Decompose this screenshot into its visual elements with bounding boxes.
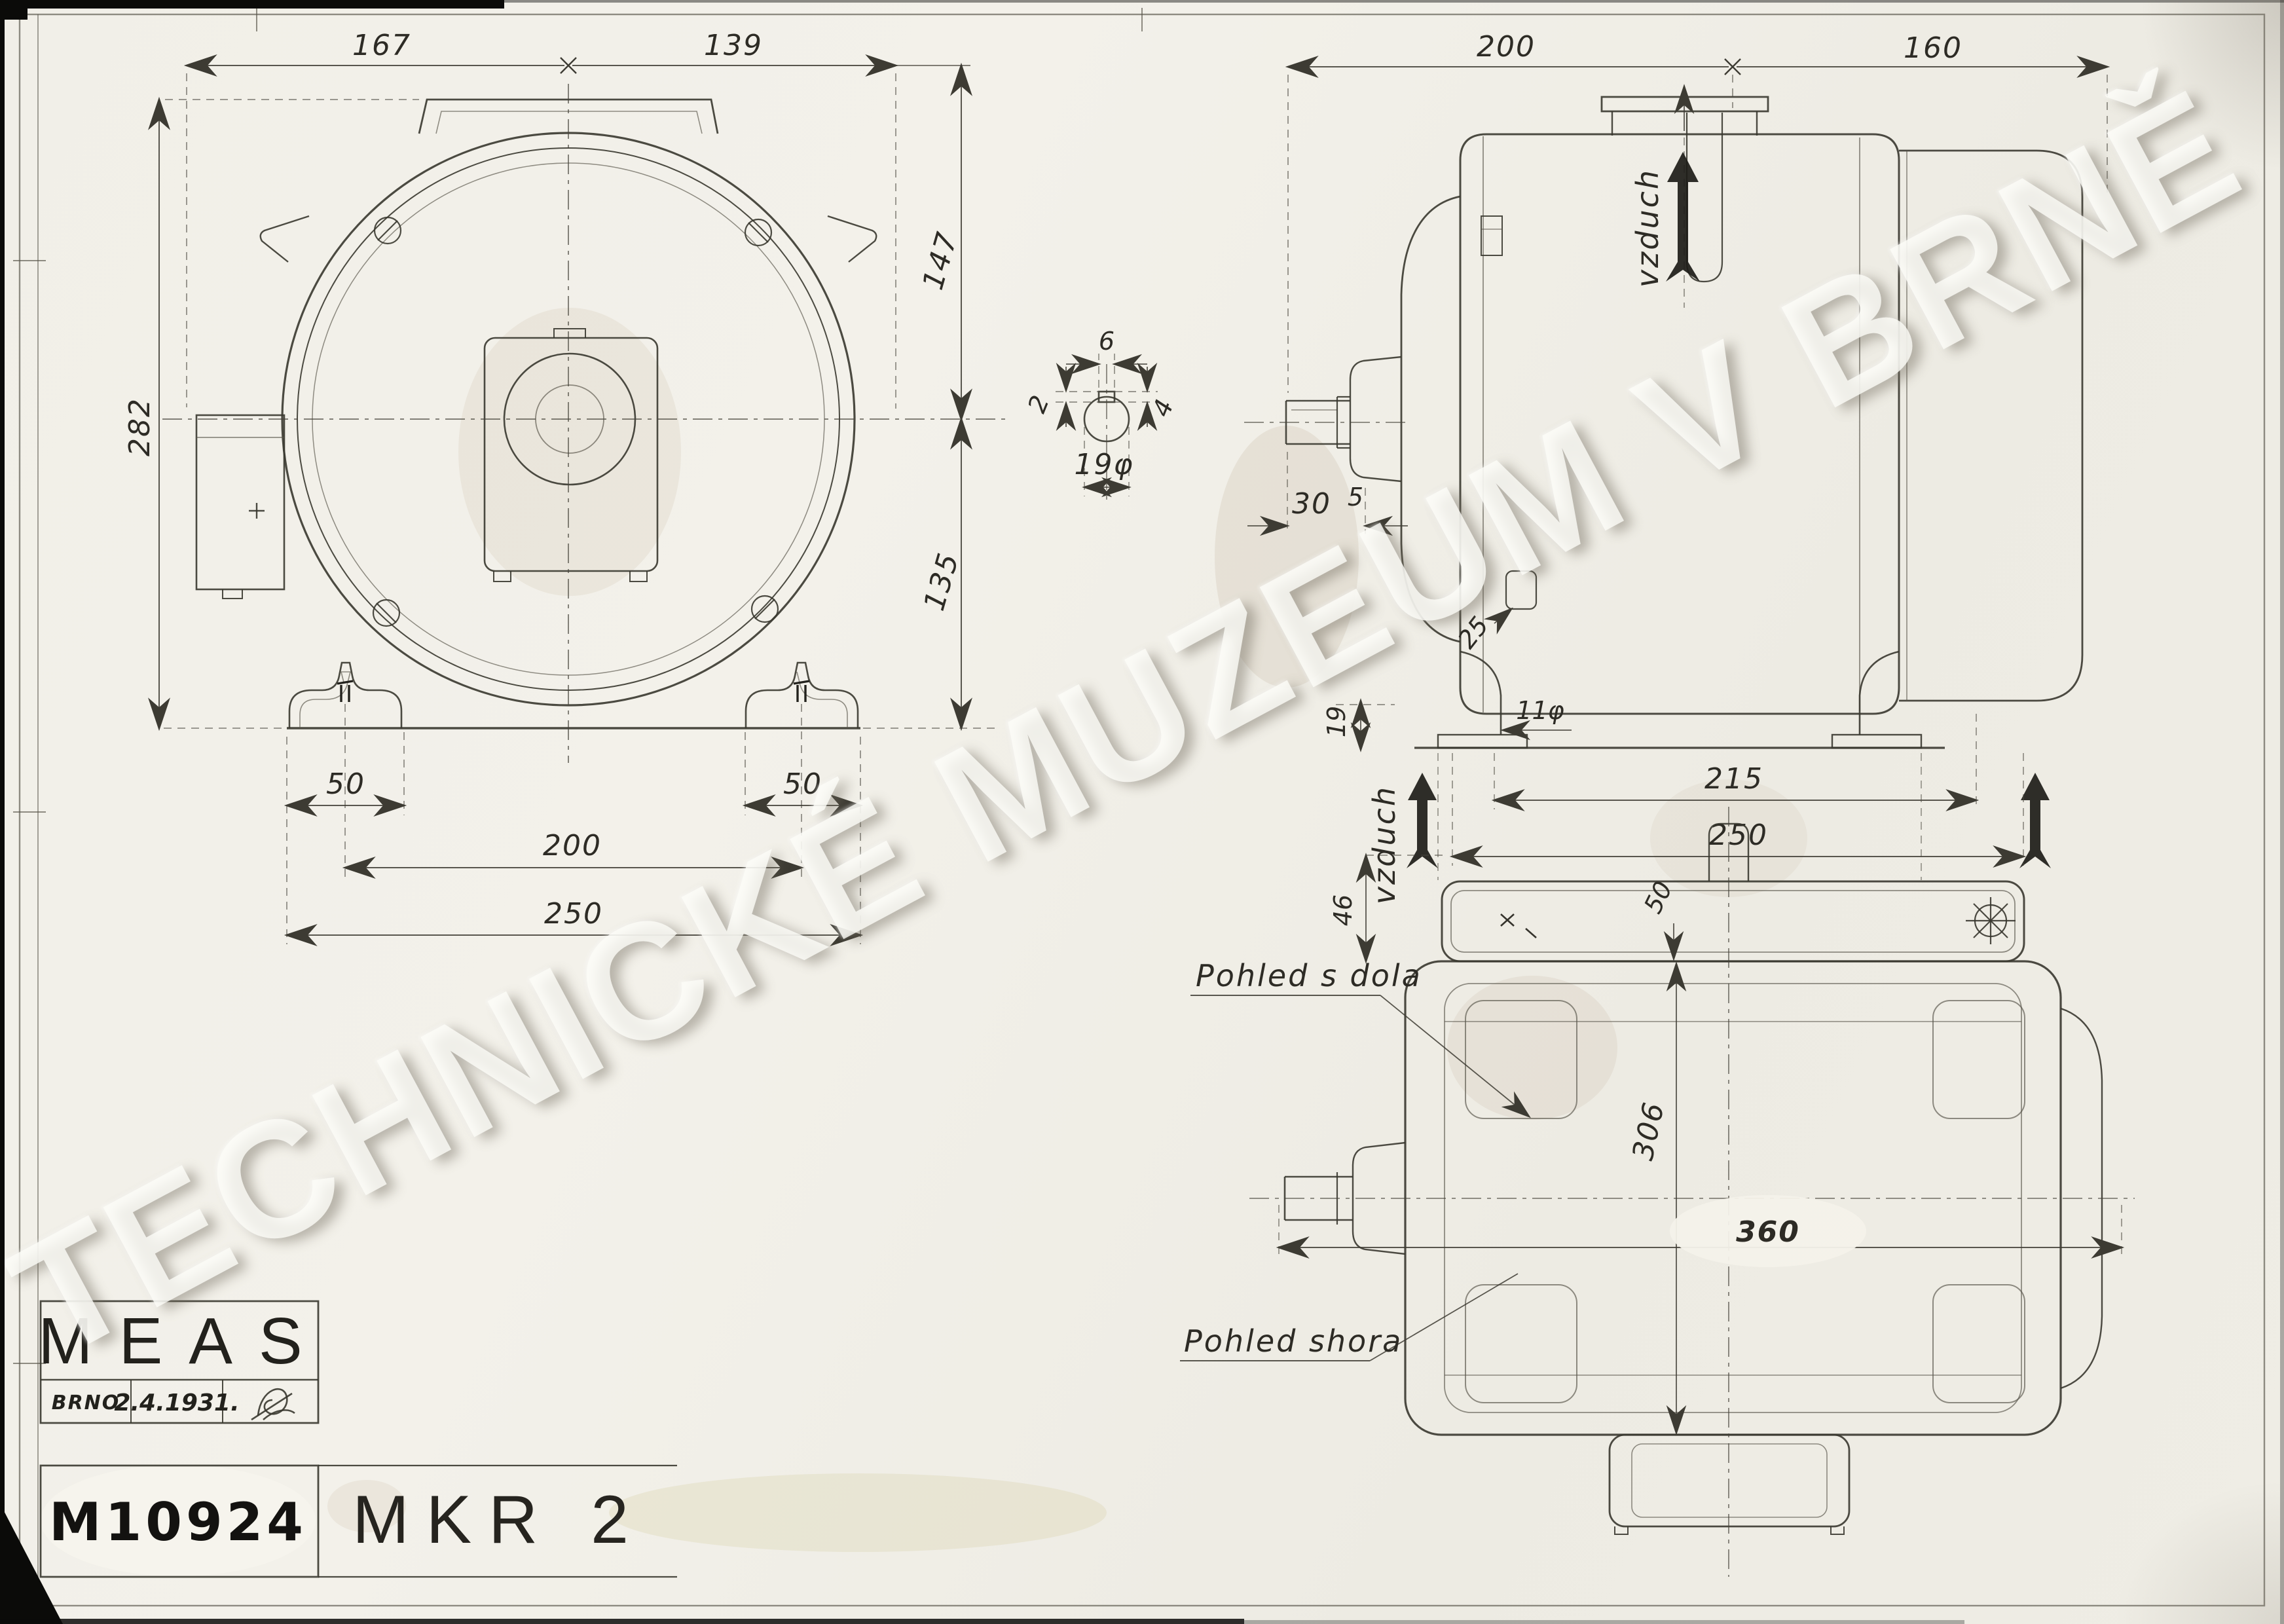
label-top-view: Pohled shora [1184, 1323, 1403, 1359]
dim-side-body-length: 200 [1477, 30, 1536, 64]
dim-front-width-left: 167 [352, 29, 411, 62]
shaft-detail-drawing: 6 2 4 19φ [1022, 327, 1179, 503]
dim-foot-depth: 50 [1638, 877, 1678, 918]
dim-front-center-top: 147 [916, 228, 965, 294]
dim-key-width: 6 [1099, 327, 1114, 356]
dim-foot-plate: 46 [1329, 895, 1357, 926]
top-view-drawing: 46 50 306 360 Pohled s dola Pohled shora [1180, 807, 2135, 1577]
air-label-top: vzduch [1630, 168, 1665, 287]
scan-shadow-topright [2140, 0, 2284, 170]
scan-edge-right [2280, 0, 2284, 1624]
dim-foot-hole: 11φ [1516, 696, 1564, 725]
drawing-number: M10924 [49, 1492, 307, 1553]
dim-foot-span: 215 [1704, 762, 1763, 796]
drawing-sheet: 167 139 282 147 135 50 50 200 250 6 2 4 … [0, 0, 2284, 1624]
dim-front-bolt-span: 200 [543, 829, 602, 862]
dim-front-height: 282 [123, 397, 157, 456]
signature [251, 1389, 295, 1420]
small-marks [1501, 914, 1536, 938]
dim-front-center-base: 135 [917, 549, 966, 615]
dim-front-foot-left: 50 [326, 767, 365, 801]
bolt-symbol-icon [1966, 897, 2016, 944]
foot-bolt-marks [337, 681, 809, 702]
scan-edge-top [0, 0, 504, 9]
label-bottom-view: Pohled s dola [1196, 958, 1422, 993]
dim-side-fan-length: 160 [1904, 31, 1962, 65]
dim-front-width-right: 139 [704, 29, 763, 62]
title-date: 2.4.1931. [114, 1390, 239, 1416]
dim-shaft-diameter: 19φ [1074, 448, 1133, 481]
scan-edge-bottom [0, 1619, 1244, 1624]
scan-edge-top-faint [504, 0, 2284, 3]
dim-key-depth: 4 [1147, 396, 1179, 421]
scan-edge-left [0, 0, 5, 1624]
scan-edge-bottom-faint [1244, 1620, 1964, 1624]
model-designation: MKR 2 [352, 1482, 646, 1558]
dim-overall-width: 360 [1736, 1215, 1800, 1249]
dim-key-top: 2 [1022, 392, 1055, 417]
scan-shadow-bottomright [2114, 1480, 2284, 1624]
air-label-bottom: vzduch [1367, 785, 1402, 904]
dim-body-length-top: 306 [1627, 1099, 1672, 1164]
